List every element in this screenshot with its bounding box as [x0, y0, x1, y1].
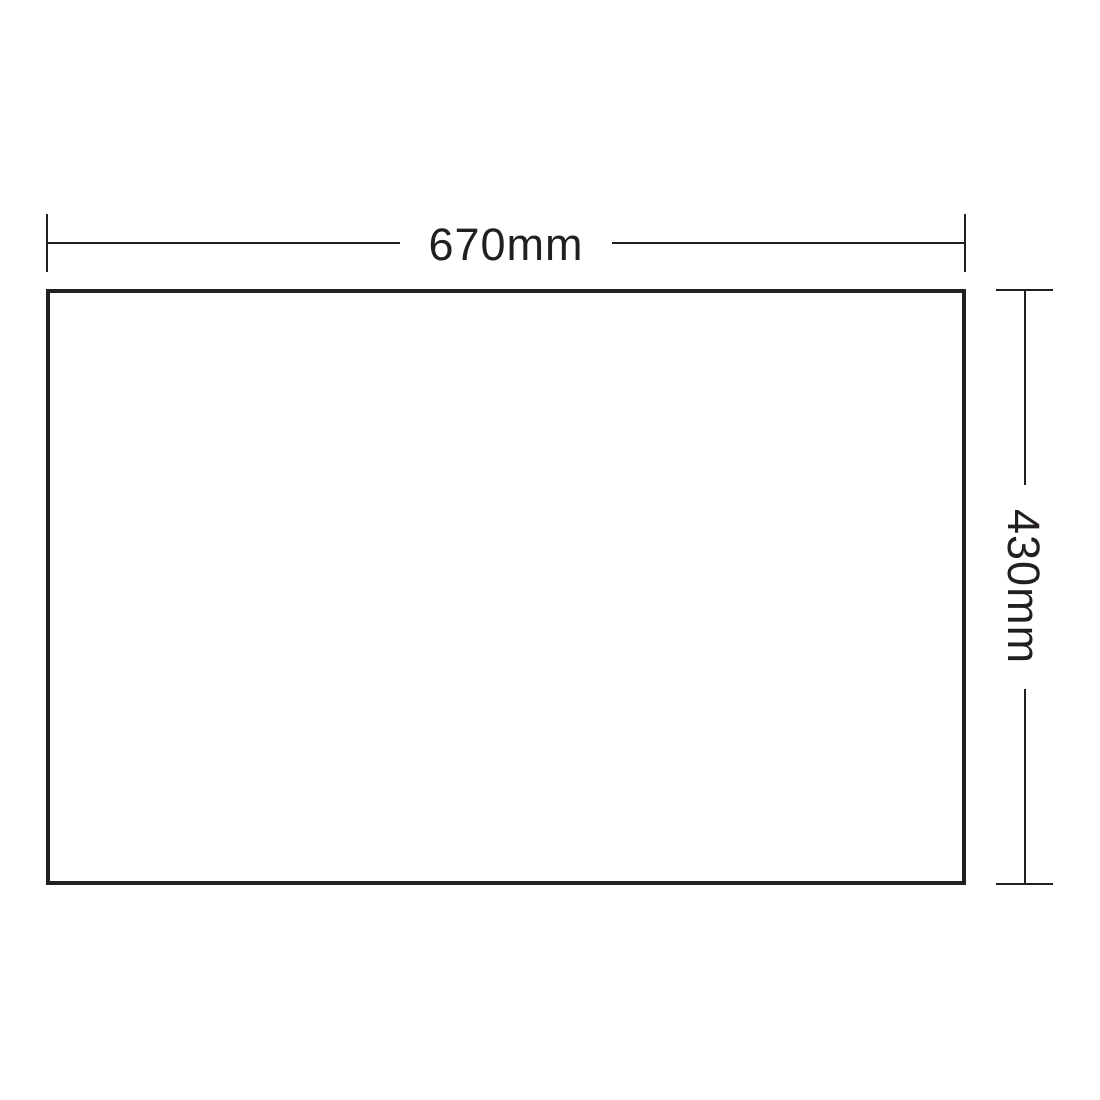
width-dimension: 670mm: [46, 214, 966, 272]
height-dimension-line-bottom: [1024, 689, 1026, 883]
width-dimension-line-left: [48, 242, 400, 244]
width-dimension-line-right: [612, 242, 964, 244]
height-dimension: 430mm: [996, 289, 1053, 885]
dimension-drawing: 670mm 430mm: [0, 0, 1100, 1100]
rectangle-outline: [46, 289, 966, 885]
height-dimension-bottom-tick: [996, 883, 1053, 885]
height-dimension-label: 430mm: [1001, 509, 1046, 664]
height-dimension-line-top: [1024, 291, 1026, 485]
width-dimension-right-tick: [964, 214, 966, 272]
width-dimension-label: 670mm: [428, 222, 583, 267]
